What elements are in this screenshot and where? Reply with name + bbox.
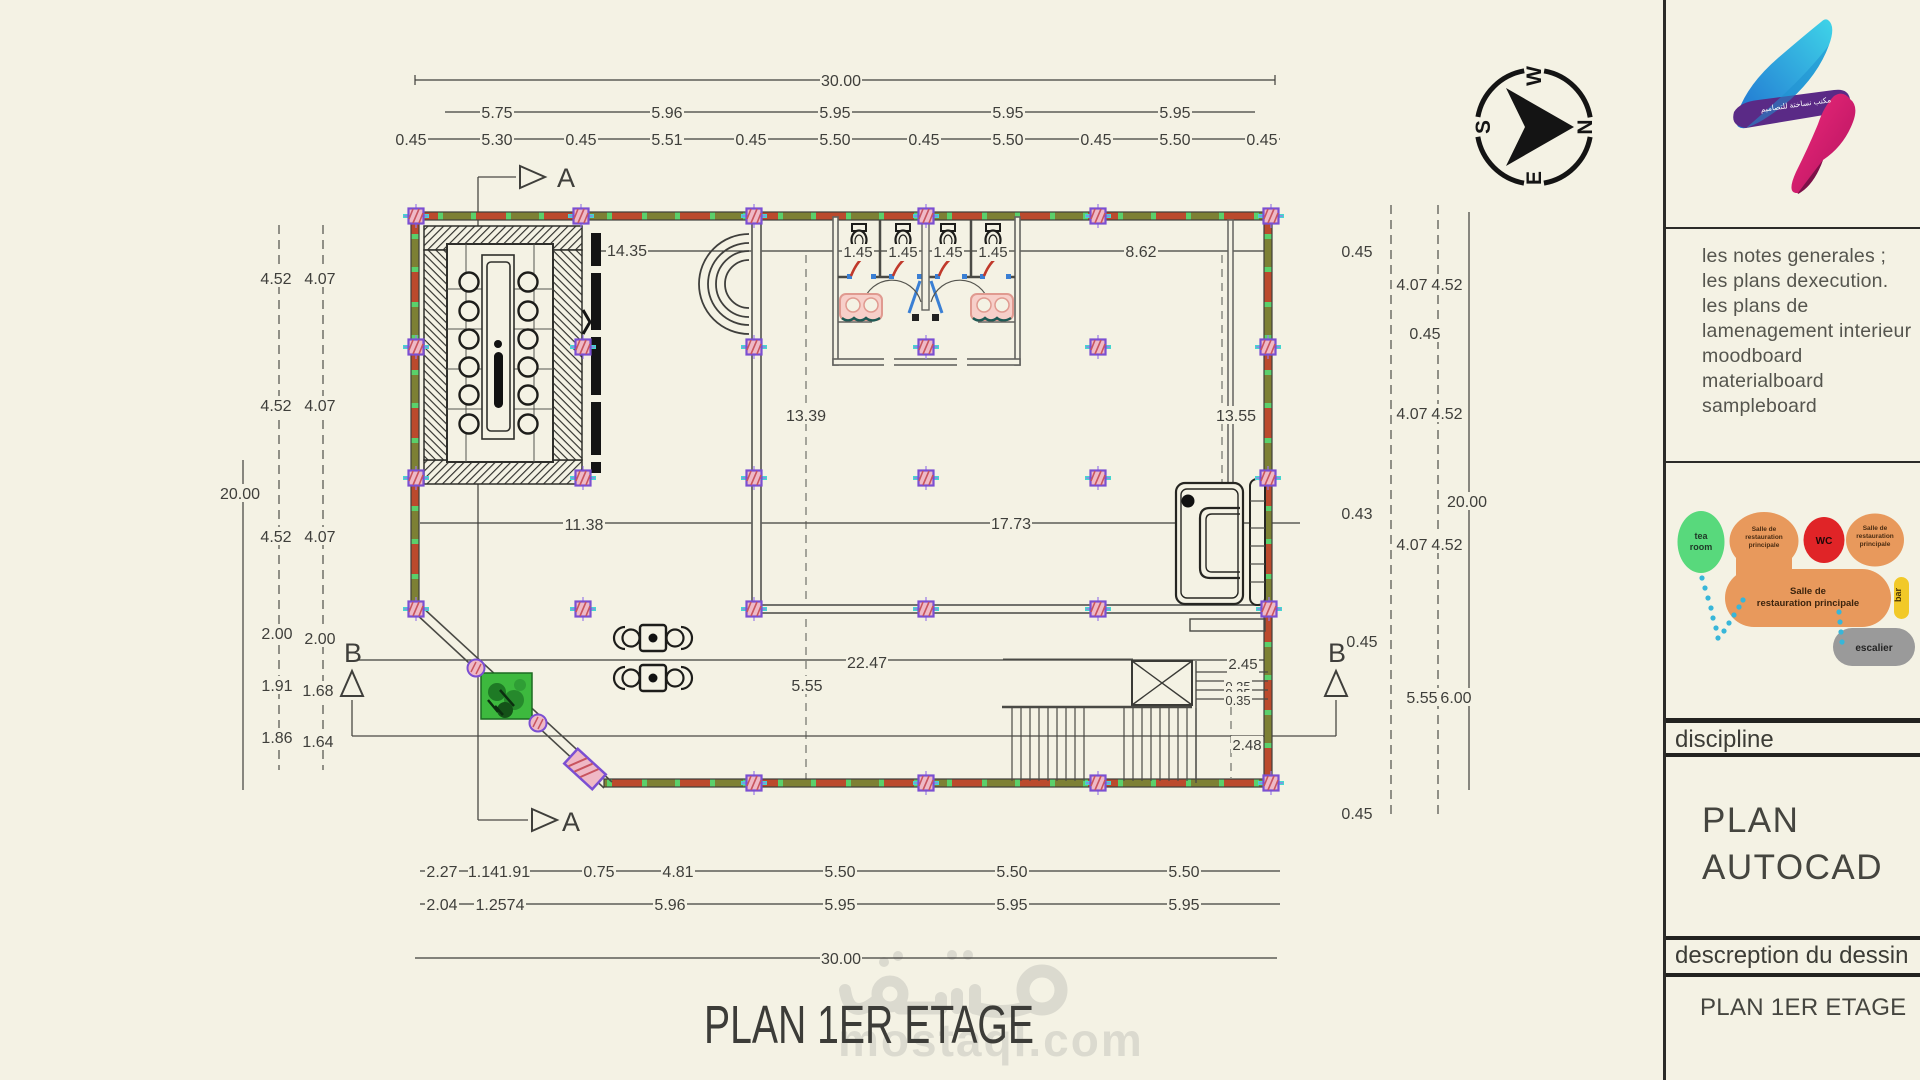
- svg-text:1.45: 1.45: [888, 244, 917, 261]
- svg-text:5.50: 5.50: [819, 132, 850, 149]
- svg-text:WC: WC: [1816, 536, 1833, 547]
- svg-text:17.73: 17.73: [991, 516, 1031, 533]
- svg-text:5.95: 5.95: [824, 897, 855, 914]
- svg-text:4.52: 4.52: [1431, 406, 1462, 423]
- svg-text:4.07: 4.07: [304, 398, 335, 415]
- svg-text:room: room: [1690, 542, 1713, 552]
- svg-text:1.2574: 1.2574: [476, 897, 525, 914]
- svg-text:A: A: [562, 807, 580, 837]
- svg-text:5.75: 5.75: [481, 105, 512, 122]
- svg-text:20.00: 20.00: [1447, 494, 1487, 511]
- svg-text:Salle de: Salle de: [1790, 586, 1826, 597]
- svg-text:B: B: [1328, 638, 1346, 668]
- svg-text:6.00: 6.00: [1440, 690, 1471, 707]
- svg-text:8.62: 8.62: [1125, 244, 1156, 261]
- svg-text:0.45: 0.45: [1341, 806, 1372, 823]
- svg-text:restauration: restauration: [1745, 534, 1783, 541]
- svg-text:5.55: 5.55: [1406, 690, 1437, 707]
- svg-text:0.35: 0.35: [1225, 693, 1250, 708]
- svg-text:5.50: 5.50: [992, 132, 1023, 149]
- svg-text:14.35: 14.35: [607, 243, 647, 260]
- svg-text:2.04: 2.04: [426, 897, 457, 914]
- svg-text:13.39: 13.39: [786, 408, 826, 425]
- svg-text:5.95: 5.95: [1159, 105, 1190, 122]
- svg-text:4.07: 4.07: [1396, 406, 1427, 423]
- svg-text:bar: bar: [1893, 588, 1903, 603]
- svg-text:0.45: 0.45: [1080, 132, 1111, 149]
- svg-text:1.45: 1.45: [933, 244, 962, 261]
- svg-text:Salle de: Salle de: [1863, 525, 1888, 532]
- svg-text:5.55: 5.55: [791, 678, 822, 695]
- svg-text:4.81: 4.81: [662, 864, 693, 881]
- svg-text:4.07: 4.07: [1396, 277, 1427, 294]
- svg-text:4.52: 4.52: [1431, 277, 1462, 294]
- svg-text:E: E: [1523, 171, 1546, 185]
- svg-text:5.50: 5.50: [996, 864, 1027, 881]
- svg-text:0.45: 0.45: [1409, 326, 1440, 343]
- svg-text:4.07: 4.07: [304, 529, 335, 546]
- svg-text:5.96: 5.96: [651, 105, 682, 122]
- svg-text:N: N: [1574, 119, 1597, 134]
- svg-text:Salle de: Salle de: [1752, 526, 1777, 533]
- svg-text:5.95: 5.95: [1168, 897, 1199, 914]
- svg-text:1.91: 1.91: [261, 678, 292, 695]
- svg-text:principale: principale: [1749, 542, 1780, 549]
- svg-text:1.68: 1.68: [302, 683, 333, 700]
- svg-text:restauration: restauration: [1856, 533, 1894, 540]
- svg-text:5.30: 5.30: [481, 132, 512, 149]
- svg-text:0.45: 0.45: [1346, 634, 1377, 651]
- svg-text:2.45: 2.45: [1228, 656, 1257, 673]
- svg-text:2.27: 2.27: [426, 864, 457, 881]
- svg-text:4.52: 4.52: [260, 271, 291, 288]
- svg-text:escalier: escalier: [1855, 643, 1892, 654]
- svg-text:1.141.91: 1.141.91: [468, 864, 530, 881]
- svg-text:5.51: 5.51: [651, 132, 682, 149]
- svg-text:4.52: 4.52: [260, 398, 291, 415]
- svg-text:4.07: 4.07: [304, 271, 335, 288]
- svg-text:tea: tea: [1694, 531, 1708, 541]
- svg-text:B: B: [344, 638, 362, 668]
- svg-text:11.38: 11.38: [565, 517, 604, 534]
- svg-text:30.00: 30.00: [821, 951, 861, 968]
- svg-text:0.45: 0.45: [1246, 132, 1277, 149]
- svg-text:0.45: 0.45: [565, 132, 596, 149]
- svg-text:W: W: [1523, 66, 1546, 86]
- svg-text:5.50: 5.50: [824, 864, 855, 881]
- svg-text:4.52: 4.52: [260, 529, 291, 546]
- svg-text:0.75: 0.75: [583, 864, 614, 881]
- svg-text:20.00: 20.00: [220, 486, 260, 503]
- svg-text:5.50: 5.50: [1168, 864, 1199, 881]
- svg-text:2.00: 2.00: [304, 631, 335, 648]
- svg-text:4.07: 4.07: [1396, 537, 1427, 554]
- svg-text:S: S: [1472, 120, 1495, 134]
- svg-text:0.45: 0.45: [1341, 244, 1372, 261]
- svg-text:1.64: 1.64: [302, 734, 333, 751]
- svg-text:30.00: 30.00: [821, 73, 861, 90]
- svg-text:2.00: 2.00: [261, 626, 292, 643]
- svg-text:principale: principale: [1860, 541, 1891, 548]
- svg-text:1.45: 1.45: [843, 244, 872, 261]
- svg-text:restauration principale: restauration principale: [1757, 598, 1859, 609]
- svg-text:4.52: 4.52: [1431, 537, 1462, 554]
- svg-text:5.95: 5.95: [992, 105, 1023, 122]
- svg-text:5.50: 5.50: [1159, 132, 1190, 149]
- svg-text:5.95: 5.95: [819, 105, 850, 122]
- svg-text:5.96: 5.96: [654, 897, 685, 914]
- svg-text:1.45: 1.45: [978, 244, 1007, 261]
- svg-text:2.48: 2.48: [1232, 737, 1261, 754]
- svg-text:0.45: 0.45: [908, 132, 939, 149]
- svg-text:5.95: 5.95: [996, 897, 1027, 914]
- svg-text:22.47: 22.47: [847, 655, 887, 672]
- svg-text:13.55: 13.55: [1216, 408, 1256, 425]
- svg-text:A: A: [557, 163, 575, 193]
- svg-text:0.45: 0.45: [395, 132, 426, 149]
- svg-text:PLAN 1ER ETAGE: PLAN 1ER ETAGE: [704, 995, 1034, 1055]
- svg-text:1.86: 1.86: [261, 730, 292, 747]
- svg-text:0.43: 0.43: [1341, 506, 1372, 523]
- svg-text:0.45: 0.45: [735, 132, 766, 149]
